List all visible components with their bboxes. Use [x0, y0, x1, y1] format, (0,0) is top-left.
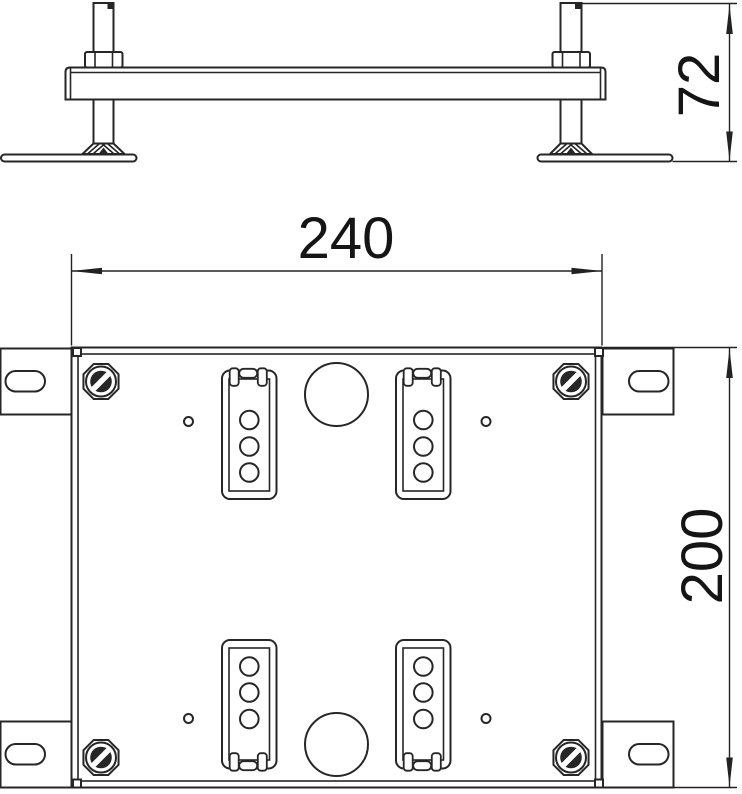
corner-screw-bottom-right — [553, 740, 588, 775]
drawing-sheet: 72 — [0, 0, 742, 794]
arrowhead-down-icon — [726, 758, 733, 788]
arrowhead-down-icon — [726, 132, 733, 162]
pilot-hole — [184, 417, 193, 426]
device-cutout-bottom-right — [396, 640, 451, 771]
cross-bar — [66, 68, 606, 100]
mounting-tab-bottom-left — [1, 722, 72, 788]
arrowhead-right-icon — [572, 268, 603, 275]
base-plate-left — [1, 155, 137, 162]
leveling-nut-right — [553, 52, 591, 68]
arrowhead-up-icon — [726, 349, 733, 379]
arrowhead-left-icon — [72, 268, 103, 275]
base-plate-right — [538, 155, 673, 162]
technical-drawing: 72 — [0, 0, 742, 794]
tube-hole-top — [305, 363, 368, 426]
arrowhead-up-icon — [726, 5, 733, 35]
side-view: 72 — [1, 3, 737, 162]
thread-mark-icon — [575, 3, 581, 10]
corner-joint — [595, 780, 603, 788]
dimension-240: 240 — [72, 206, 603, 346]
corner-screw-bottom-left — [83, 740, 118, 775]
pilot-hole — [482, 417, 491, 426]
mounting-tab-top-left — [1, 349, 72, 415]
dim-label-240: 240 — [298, 206, 395, 271]
corner-screw-top-left — [83, 364, 118, 399]
dim-label-72: 72 — [667, 53, 732, 118]
plan-view: 240 200 — [1, 206, 738, 788]
corner-joint — [595, 348, 603, 356]
corner-screw-top-right — [553, 364, 588, 399]
dim-label-200: 200 — [670, 508, 735, 605]
leveling-nut-left — [85, 52, 123, 68]
corner-joint — [73, 780, 81, 788]
device-cutout-bottom-left — [222, 640, 277, 771]
thread-mark-icon — [108, 3, 114, 10]
mounting-tab-top-right — [603, 349, 674, 415]
device-cutout-top-right — [396, 368, 451, 499]
device-cutout-top-left — [222, 368, 277, 499]
pilot-hole — [184, 714, 193, 723]
mounting-tab-bottom-right — [603, 722, 674, 788]
tube-hole-bottom — [305, 713, 368, 776]
corner-joint — [73, 348, 81, 356]
pilot-hole — [482, 714, 491, 723]
